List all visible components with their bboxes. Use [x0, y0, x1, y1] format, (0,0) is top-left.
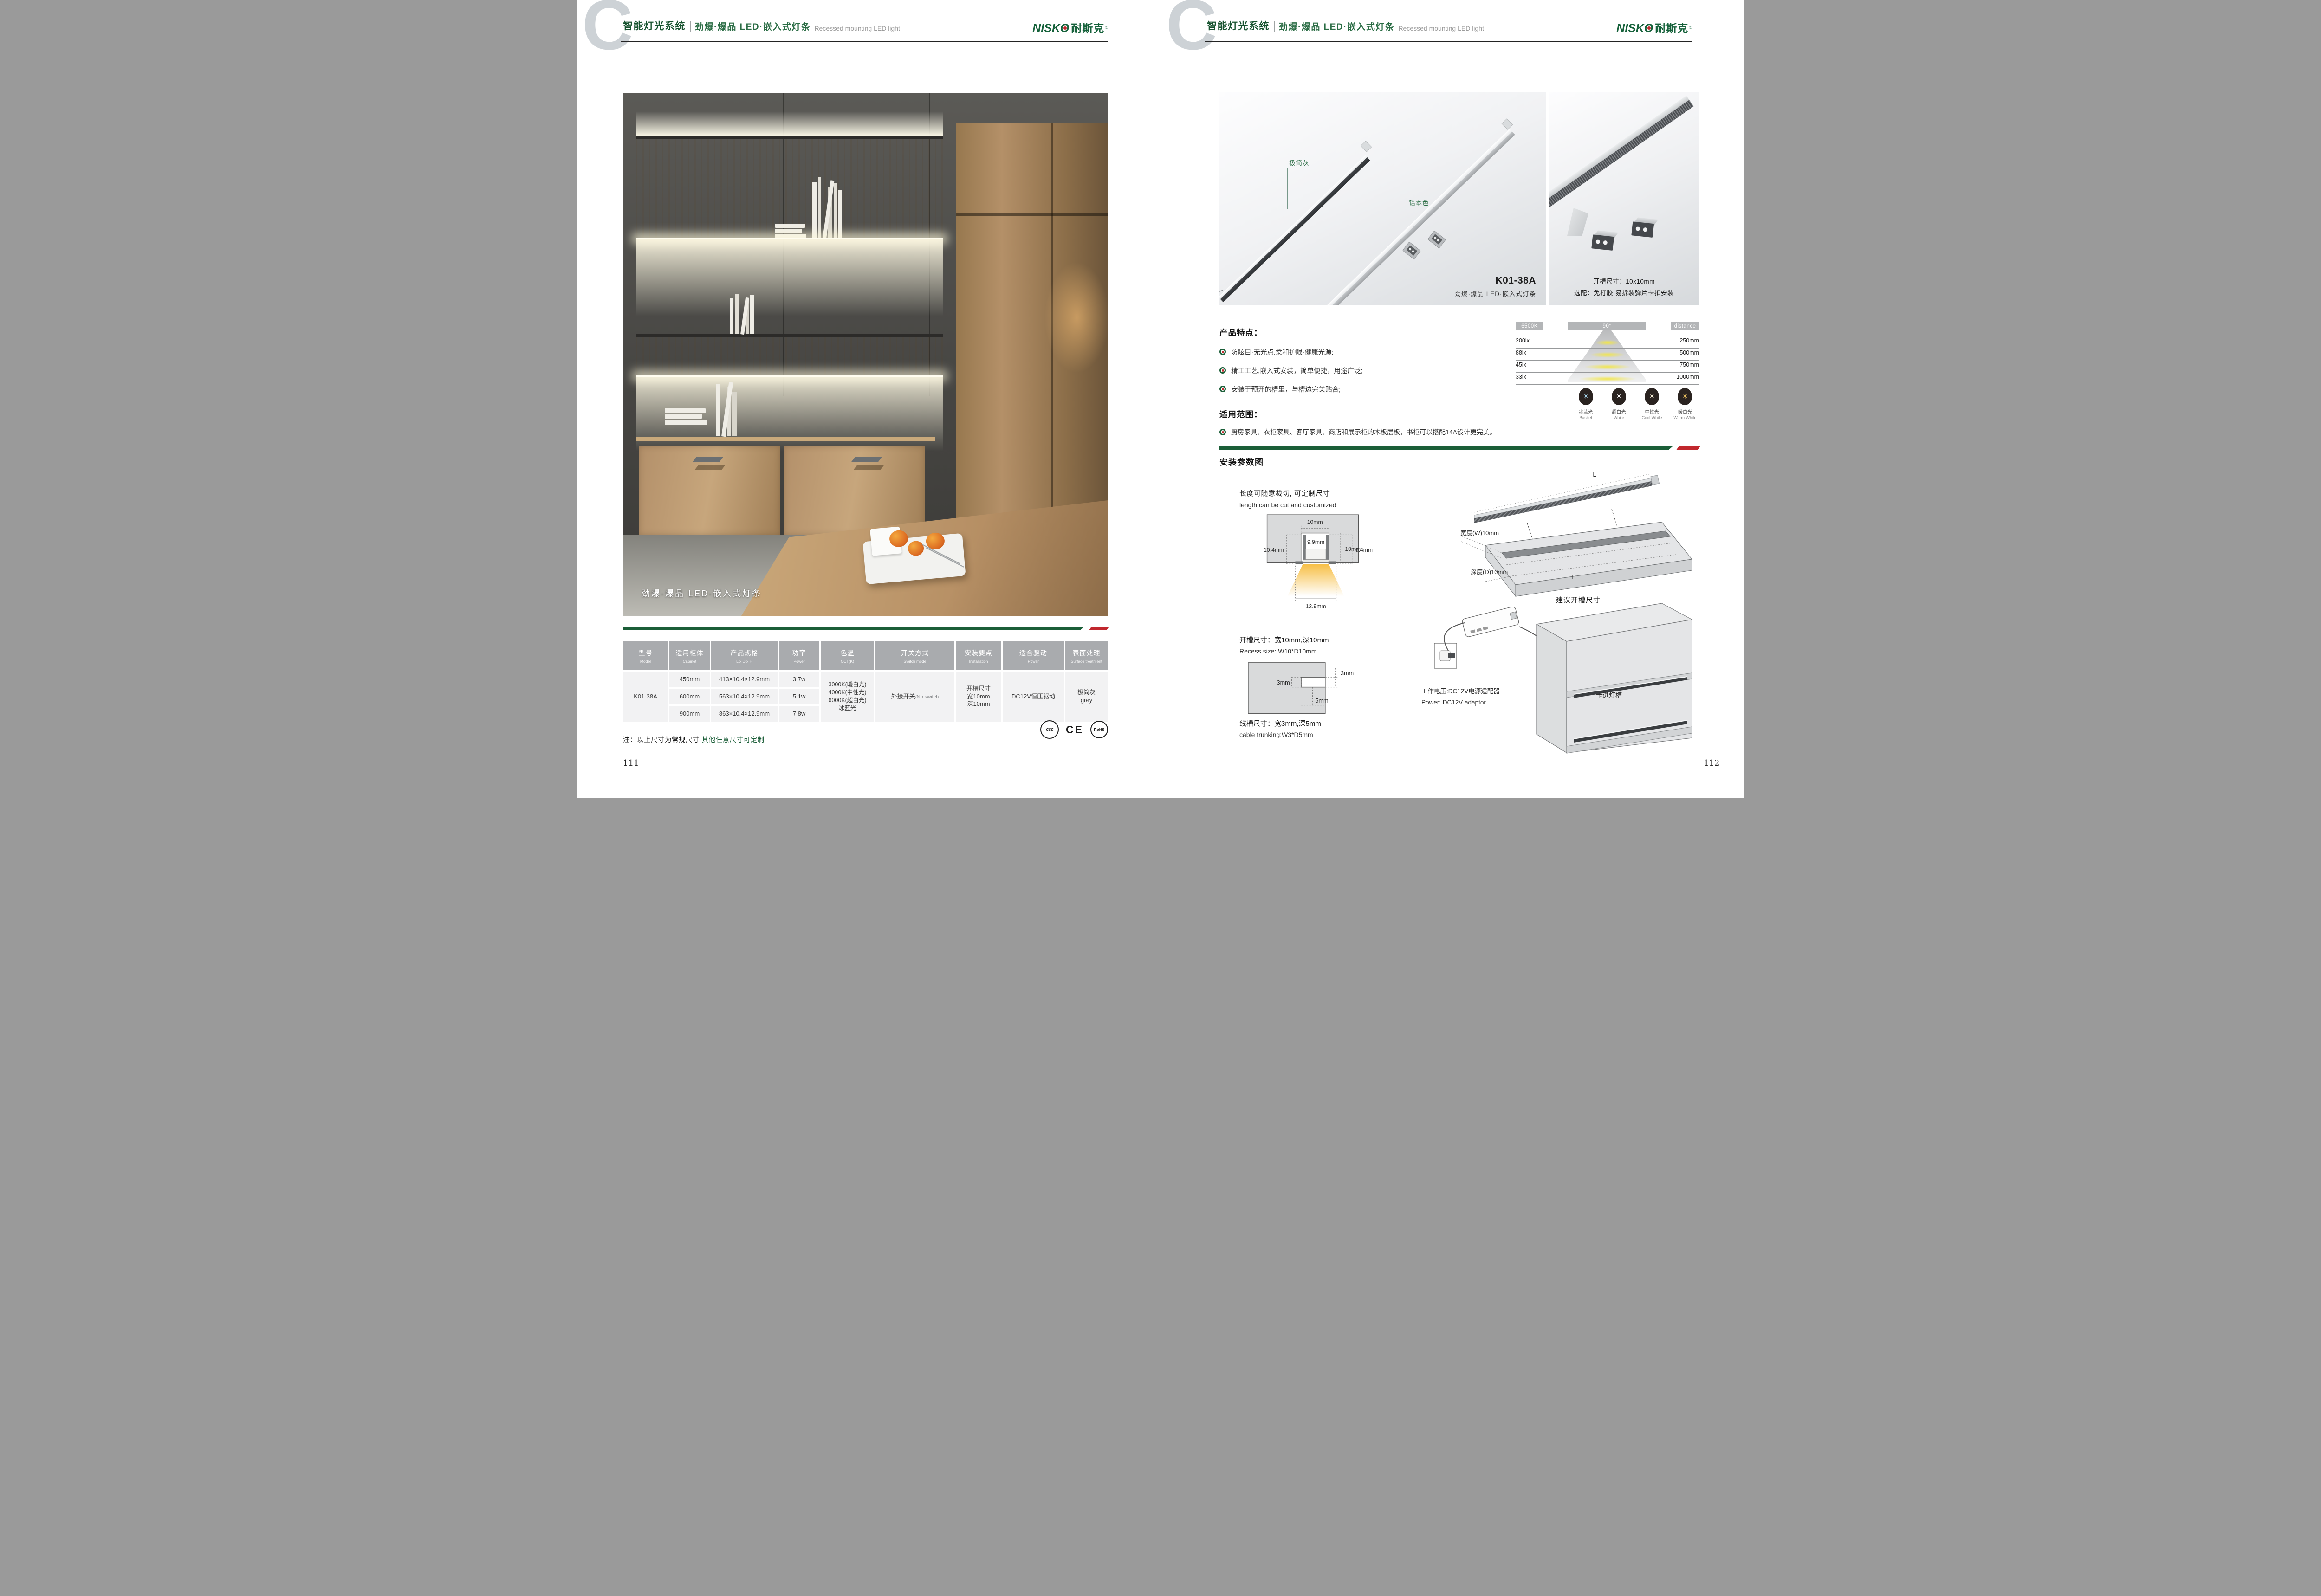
chart-row-lux: 88lx [1516, 349, 1526, 356]
header-rule [1205, 41, 1692, 44]
cell-power-450: 3.7w [779, 672, 819, 687]
install-section-title: 安装参数图 [1219, 456, 1264, 468]
wall-shelf-upper [636, 136, 943, 242]
cell-surface: 极简灰 grey [1065, 672, 1108, 722]
sun-icon: ☀ [1645, 388, 1659, 405]
header-separator [1274, 21, 1275, 32]
svg-text:3mm: 3mm [1341, 670, 1354, 677]
spec-table: 型号Model 适用柜体Cabinet 产品规格L x D x H 功率Powe… [623, 641, 1108, 722]
brand-bullet-icon [1219, 367, 1226, 374]
chart-row-dist: 750mm [1679, 362, 1699, 368]
registered-mark: ® [1689, 25, 1692, 30]
svg-text:10mm: 10mm [1307, 519, 1323, 525]
th-model: 型号Model [623, 641, 668, 670]
spec-table-body: K01-38A 450mm 600mm 900mm 413×10.4×12.9m… [623, 672, 1108, 722]
cell-power-900: 7.8w [779, 706, 819, 722]
wall-shelf-lower [636, 334, 943, 378]
system-title: 智能灯光系统 [623, 19, 686, 32]
page-header: C 智能灯光系统 劲爆·爆品 LED·嵌入式灯条 Recessed mounti… [1160, 0, 1744, 51]
ce-icon: CE [1066, 724, 1083, 736]
svg-text:L: L [1593, 471, 1596, 478]
features-section: 产品特点： 防眩目·无光点,柔和护眼·健康光源; 精工工艺,嵌入式安装，简单便捷… [1219, 327, 1503, 394]
cell-install: 开槽尺寸 宽10mm 深10mm [956, 672, 1001, 722]
registered-mark: ® [1105, 25, 1108, 30]
cross-section-diagram: 10mm 10mm 9.9mm 10.4mm 9.4mm [1243, 512, 1382, 624]
chart-row-dist: 500mm [1679, 349, 1699, 356]
brand-zh: 耐斯克 [1655, 19, 1688, 35]
chart-row-lux: 200lx [1516, 337, 1530, 344]
th-switch: 开关方式Switch mode [875, 641, 954, 670]
svg-text:12.9mm: 12.9mm [1306, 603, 1326, 610]
th-surface: 表面处理Surface treatment [1065, 641, 1108, 670]
product-line-en: Recessed mounting LED light [814, 25, 900, 32]
th-driver: 适合驱动Power [1003, 641, 1064, 670]
product-photo-main: 极简灰 铝本色 K01-38A 劲爆·爆品 LED·嵌入式灯条 [1219, 92, 1546, 305]
feature-item: 安装于预开的槽里，与槽边完美贴合; [1219, 384, 1503, 394]
brand-logo: NISKO 耐斯克 ® [1616, 19, 1692, 35]
clip-into-groove-label: 卡进灯槽 [1596, 691, 1622, 700]
lifestyle-photo: 劲爆·爆品 LED·嵌入式灯条 [623, 93, 1108, 616]
cell-spec-600: 563×10.4×12.9mm [711, 689, 778, 704]
header-rule [621, 41, 1108, 44]
product-line-en: Recessed mounting LED light [1398, 25, 1484, 32]
sun-icon: ☀ [1579, 388, 1593, 405]
cell-power-600: 5.1w [779, 689, 819, 704]
size-note: 注：以上尺寸为常规尺寸 其他任意尺寸可定制 [623, 735, 765, 744]
mounting-clip-icon [1402, 242, 1421, 260]
header-separator [690, 21, 691, 32]
brand-zh: 耐斯克 [1071, 19, 1104, 35]
chart-row-dist: 1000mm [1676, 374, 1699, 380]
svg-text:9.9mm: 9.9mm [1307, 539, 1324, 545]
features-title: 产品特点： [1219, 327, 1503, 338]
cell-cct: 3000K(暖白光) 4000K(中性光) 6000K(超白光) 冰蓝光 [821, 672, 874, 722]
brand-logo: NISKO 耐斯克 ® [1032, 19, 1108, 35]
chart-distance-label: distance [1671, 322, 1699, 330]
fruit-plate [862, 533, 966, 584]
cell-switch: 外接开关/No switch [875, 672, 954, 722]
ccc-icon: ccc [1040, 720, 1059, 739]
scope-title: 适用范围： [1219, 408, 1699, 420]
feature-item: 精工工艺,嵌入式安装，简单便捷，用途广泛; [1219, 366, 1503, 375]
sun-icon: ☀ [1678, 388, 1692, 405]
divider-red [1089, 627, 1109, 630]
brand-bullet-icon [1219, 429, 1226, 435]
cell-spec-900: 863×10.4×12.9mm [711, 706, 778, 722]
svg-text:9.4mm: 9.4mm [1355, 547, 1373, 553]
cable-notch-diagram: 3mm 3mm 5mm [1245, 661, 1361, 717]
svg-text:3mm: 3mm [1277, 679, 1290, 686]
product-photo-detail: 开槽尺寸：10x10mm 选配：免打胶·易拆装弹片卡扣安装 [1549, 92, 1699, 305]
brand-latin: NISKO [1616, 22, 1653, 35]
spring-clip-icon [1591, 230, 1617, 252]
color-label-aluminum: 铝本色 [1409, 198, 1429, 207]
page-112: C 智能灯光系统 劲爆·爆品 LED·嵌入式灯条 Recessed mounti… [1160, 0, 1744, 798]
scope-item: 厨房家具、衣柜家具、客厅家具、商店和展示柜的木板层板，书柜可以搭配14A设计更完… [1219, 427, 1699, 437]
photo-caption: 劲爆·爆品 LED·嵌入式灯条 [642, 587, 762, 599]
brand-bullet-icon [1219, 386, 1226, 392]
cut-note: 长度可随意裁切, 可定制尺寸 length can be cut and cus… [1239, 488, 1336, 509]
chart-row-dist: 250mm [1679, 337, 1699, 344]
aluminum-profile [1549, 96, 1694, 213]
cell-cabinet-600: 600mm [669, 689, 710, 704]
chart-cct-label: 6500K [1516, 322, 1543, 330]
scope-section: 适用范围： 厨房家具、衣柜家具、客厅家具、商店和展示柜的木板层板，书柜可以搭配1… [1219, 408, 1699, 437]
product-line-zh: 劲爆·爆品 LED·嵌入式灯条 [695, 20, 810, 32]
groove-width-label: 宽度(W)10mm [1460, 528, 1499, 537]
power-note-zh: 工作电压:DC12V电源适配器 [1421, 686, 1500, 695]
light-distribution-chart: 6500K 90° distance 200lx 250mm 88lx 500m… [1516, 322, 1699, 388]
spring-clip-icon [1631, 217, 1657, 239]
recess-size-note: 开槽尺寸：宽10mm,深10mm Recess size: W10*D10mm [1239, 635, 1329, 655]
page-111: C 智能灯光系统 劲爆·爆品 LED·嵌入式灯条 Recessed mounti… [577, 0, 1160, 798]
power-adaptor-diagram [1420, 599, 1699, 761]
page-header: C 智能灯光系统 劲爆·爆品 LED·嵌入式灯条 Recessed mounti… [577, 0, 1160, 51]
product-model: K01-38A [1454, 275, 1536, 286]
th-cct: 色温CCT(K) [821, 641, 874, 670]
color-label-gray: 极简灰 [1289, 158, 1310, 167]
product-model-caption: K01-38A 劲爆·爆品 LED·嵌入式灯条 [1454, 275, 1536, 298]
certification-icons: ccc CE RoHS [1040, 720, 1108, 739]
led-strip-gray [1219, 155, 1370, 302]
system-title: 智能灯光系统 [1207, 19, 1270, 32]
catalog-spread: C 智能灯光系统 劲爆·爆品 LED·嵌入式灯条 Recessed mounti… [577, 0, 1744, 798]
groove-depth-label: 深度(D)10mm [1471, 567, 1508, 576]
mounting-clip-icon [1427, 231, 1446, 249]
sun-icon: ☀ [1612, 388, 1626, 405]
brand-latin: NISKO [1032, 22, 1069, 35]
chart-beam-angle: 90° [1568, 322, 1646, 330]
svg-text:L: L [1572, 574, 1575, 581]
cable-size-note: 线槽尺寸：宽3mm,深5mm cable trunking:W3*D5mm [1239, 718, 1321, 738]
spec-table-header: 型号Model 适用柜体Cabinet 产品规格L x D x H 功率Powe… [623, 641, 1108, 670]
chart-row-lux: 33lx [1516, 374, 1526, 380]
divider-red [1677, 446, 1700, 450]
cell-spec-450: 413×10.4×12.9mm [711, 672, 778, 687]
cell-driver: DC12V恒压驱动 [1003, 672, 1064, 722]
divider-green [1219, 446, 1673, 450]
feature-item: 防眩目·无光点,柔和护眼·健康光源; [1219, 347, 1503, 357]
cell-cabinet-450: 450mm [669, 672, 710, 687]
page-number-left: 111 [623, 758, 639, 768]
detail-caption: 开槽尺寸：10x10mm 选配：免打胶·易拆装弹片卡扣安装 [1549, 276, 1699, 299]
product-line-zh: 劲爆·爆品 LED·嵌入式灯条 [1279, 20, 1394, 32]
svg-text:10.4mm: 10.4mm [1264, 547, 1284, 553]
svg-text:5mm: 5mm [1315, 698, 1328, 704]
divider-green [623, 627, 1084, 630]
power-note-en: Power: DC12V adaptor [1421, 699, 1486, 706]
rohs-icon: RoHS [1090, 721, 1108, 738]
page-number-right: 112 [1704, 758, 1719, 768]
th-spec: 产品规格L x D x H [711, 641, 778, 670]
brand-bullet-icon [1219, 349, 1226, 355]
th-install: 安装要点Installation [956, 641, 1001, 670]
cell-model: K01-38A [623, 672, 668, 722]
sideboard [636, 437, 935, 540]
chart-row-lux: 45lx [1516, 362, 1526, 368]
cell-cabinet-900: 900mm [669, 706, 710, 722]
th-power: 功率Power [779, 641, 819, 670]
th-cabinet: 适用柜体Cabinet [669, 641, 710, 670]
